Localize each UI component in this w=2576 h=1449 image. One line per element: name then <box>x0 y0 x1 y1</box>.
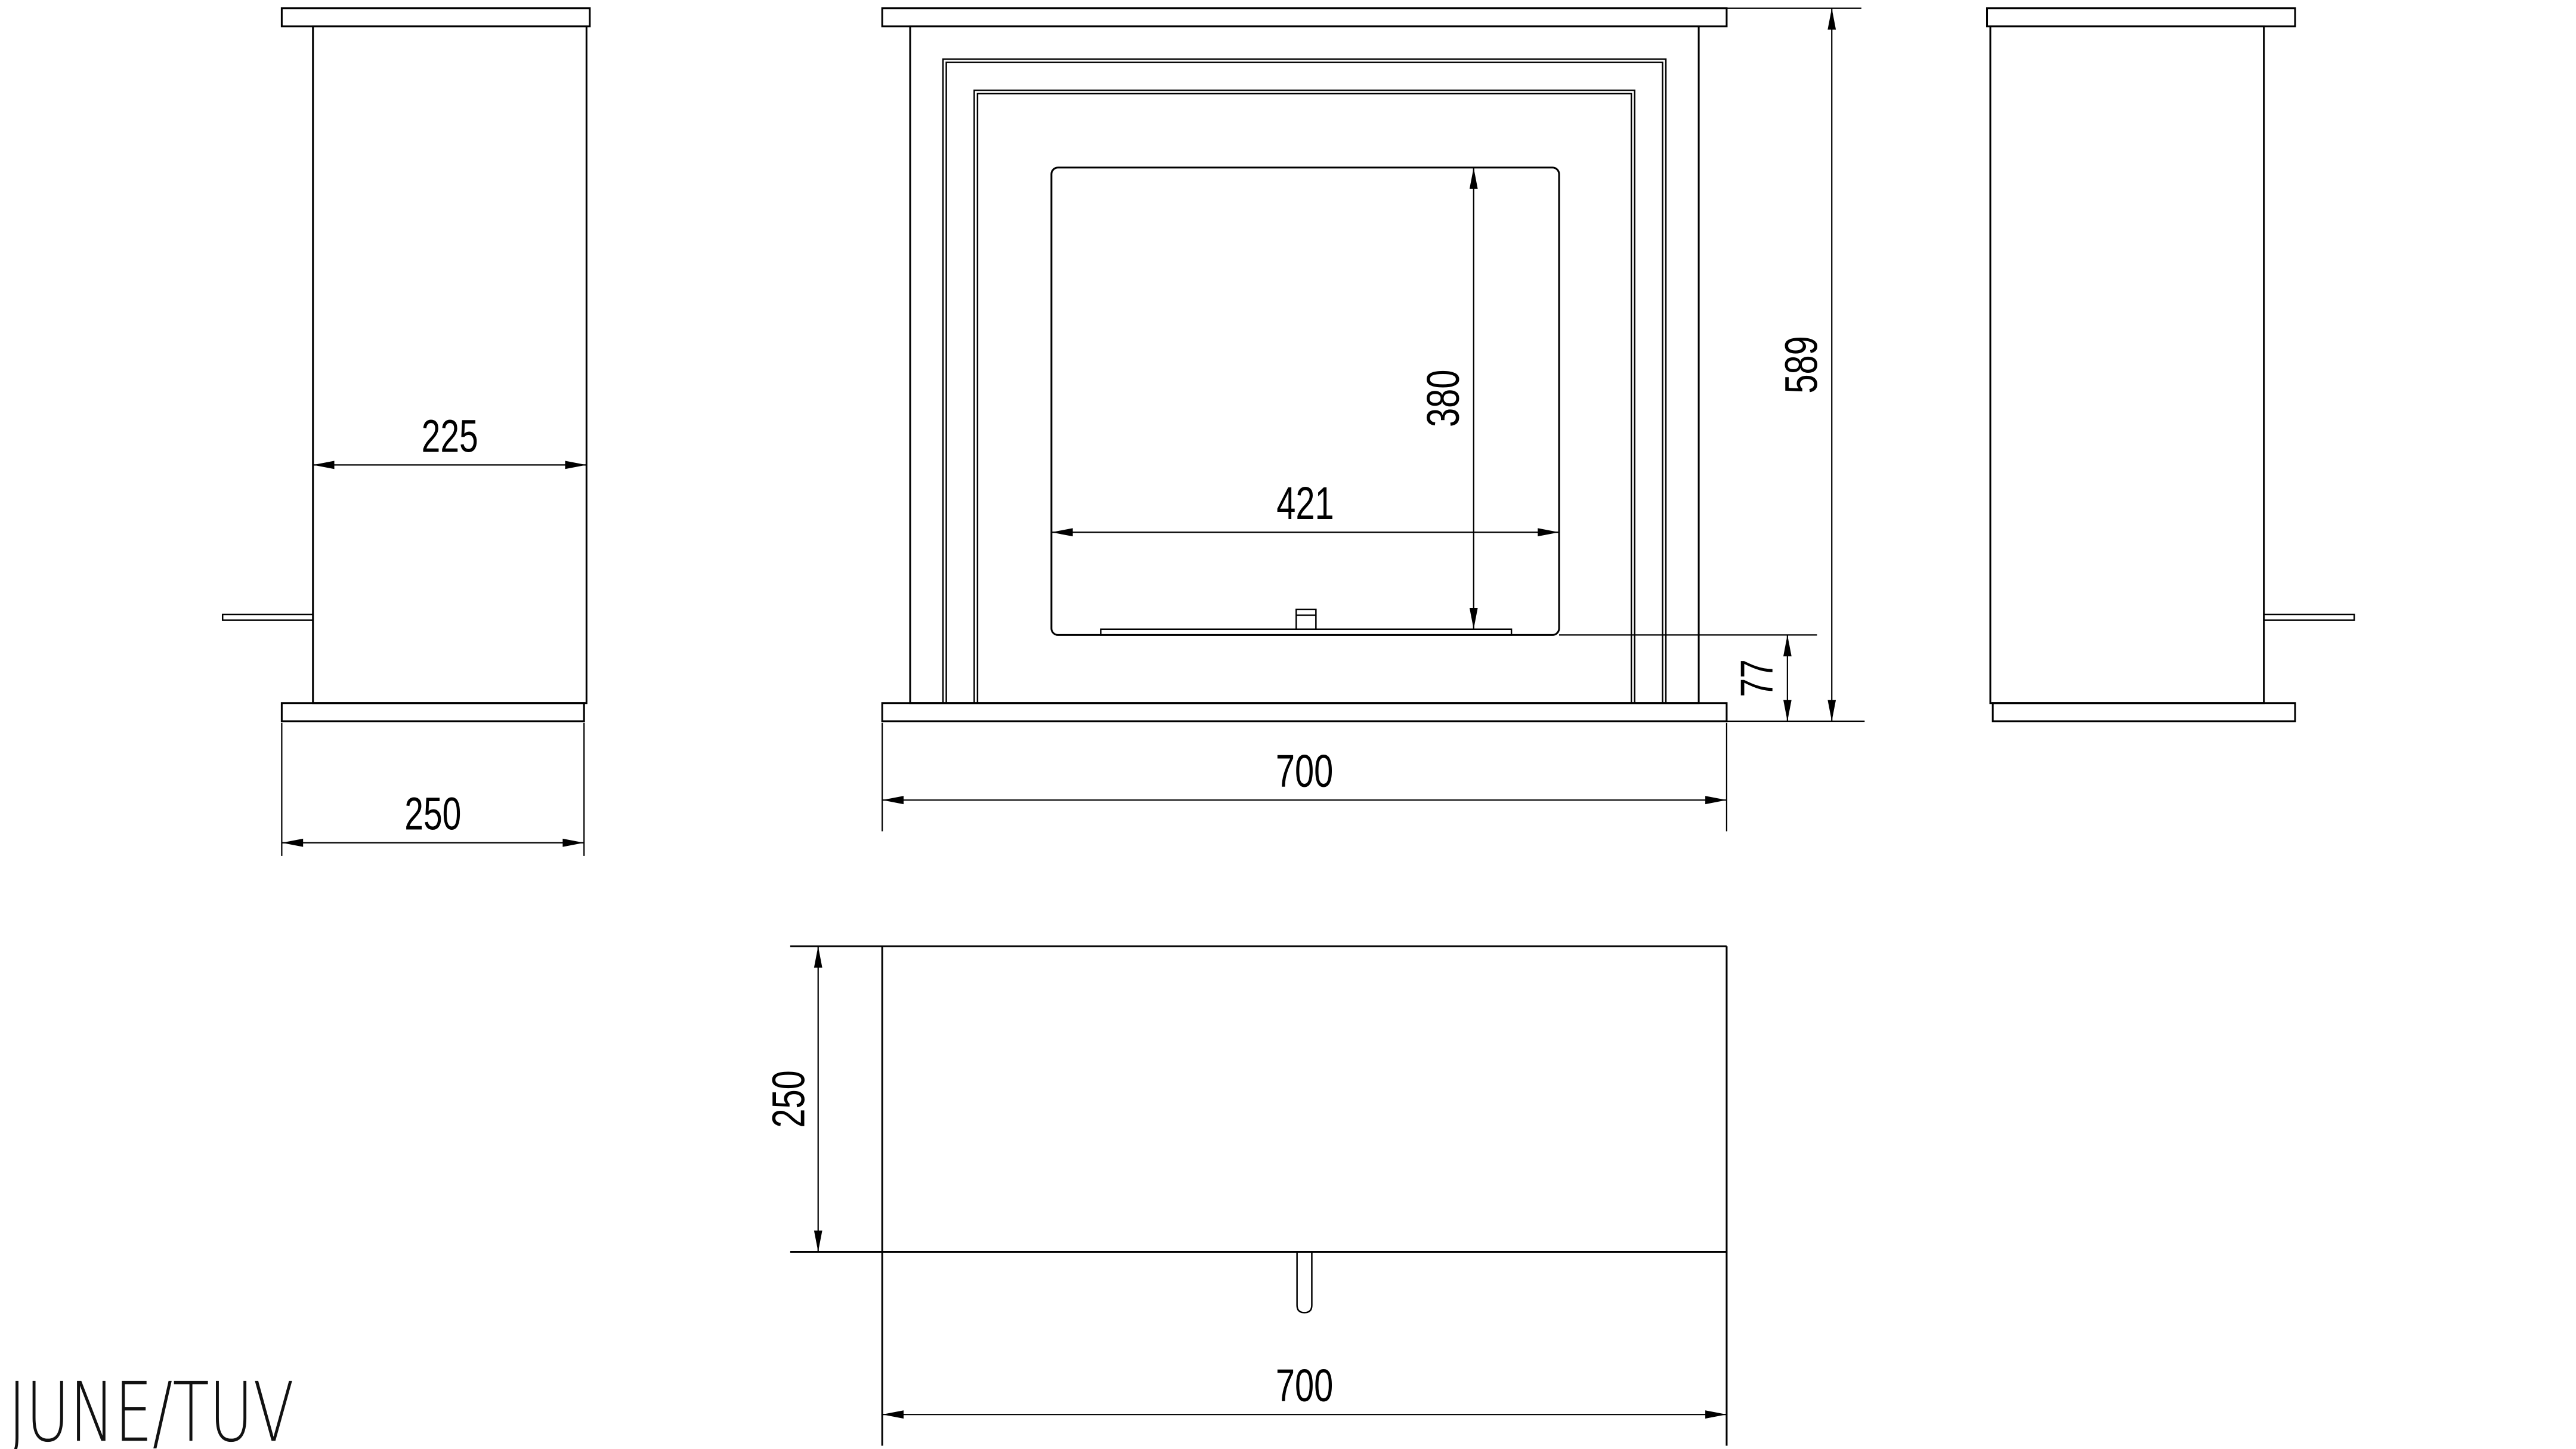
arrowhead-up <box>1827 8 1836 30</box>
burner-slider-knob <box>1296 610 1316 629</box>
side-base-plinth <box>1993 703 2295 721</box>
dimension-label-base-height: 77 <box>1731 659 1783 697</box>
trim-frame-middle <box>974 90 1634 703</box>
dimension-label-overall-width: 700 <box>1276 746 1333 797</box>
arrowhead-left <box>1052 528 1073 536</box>
arrowhead-down <box>814 1231 822 1252</box>
arrowhead-down <box>1783 700 1792 721</box>
dimension-label-plan-depth: 250 <box>763 1070 814 1127</box>
dimension-label-side-base-depth: 250 <box>404 789 461 840</box>
front-base-plinth <box>882 703 1727 721</box>
dimension-label-opening-height: 380 <box>1418 370 1469 427</box>
arrowhead-left <box>882 1410 904 1419</box>
arrowhead-right <box>1705 796 1727 804</box>
arrowhead-down <box>1470 608 1478 629</box>
side-column-body <box>1990 26 2264 703</box>
front-top-cap <box>882 8 1727 26</box>
plan-view: 250 700 <box>763 946 1727 1445</box>
dimension-base-height: 77 <box>1731 635 1792 721</box>
dimension-plan-width: 700 <box>882 1360 1727 1419</box>
dimension-plan-depth: 250 <box>763 946 822 1252</box>
front-view: 421 380 589 77 700 <box>882 8 1864 832</box>
arrowhead-right <box>565 461 587 469</box>
firebox-opening <box>1052 168 1559 635</box>
side-column-body <box>313 26 587 703</box>
right-side-view <box>1987 8 2355 721</box>
technical-drawing-sheet: 225 250 421 <box>0 0 2576 1449</box>
dimension-label-plan-width: 700 <box>1276 1360 1333 1411</box>
arrowhead-up <box>814 946 822 968</box>
dimension-opening-width: 421 <box>1052 478 1559 536</box>
side-base-plinth <box>282 703 584 721</box>
arrowhead-left <box>313 461 335 469</box>
fireplace-dimension-drawing: 225 250 421 <box>0 0 2576 1449</box>
side-front-ledge <box>222 614 313 620</box>
dimension-label-side-width: 225 <box>422 410 478 462</box>
dimension-label-overall-height: 589 <box>1776 336 1827 393</box>
side-top-cap <box>282 8 589 26</box>
product-title: JUNE/TUV <box>8 1365 294 1449</box>
arrowhead-right <box>1705 1410 1727 1419</box>
trim-frame-middle-inner-line <box>978 94 1631 703</box>
arrowhead-up <box>1783 635 1792 656</box>
dimension-overall-width: 700 <box>882 723 1727 832</box>
arrowhead-down <box>1827 700 1836 721</box>
trim-frame-outer-inner-line <box>947 63 1663 703</box>
side-front-ledge <box>2264 614 2354 620</box>
plan-slider-slot <box>1297 1252 1312 1313</box>
dimension-side-base-depth: 250 <box>282 723 584 856</box>
arrowhead-right <box>562 839 584 847</box>
arrowhead-left <box>282 839 303 847</box>
side-top-cap <box>1987 8 2295 26</box>
left-side-view: 225 250 <box>222 8 590 856</box>
arrowhead-up <box>1470 168 1478 189</box>
arrowhead-right <box>1538 528 1559 536</box>
arrowhead-left <box>882 796 904 804</box>
dimension-opening-height: 380 <box>1418 168 1478 629</box>
front-body-outline <box>910 26 1699 703</box>
dimension-side-width: 225 <box>313 410 587 469</box>
dimension-overall-height: 589 <box>1776 8 1836 721</box>
dimension-label-opening-width: 421 <box>1276 478 1334 529</box>
